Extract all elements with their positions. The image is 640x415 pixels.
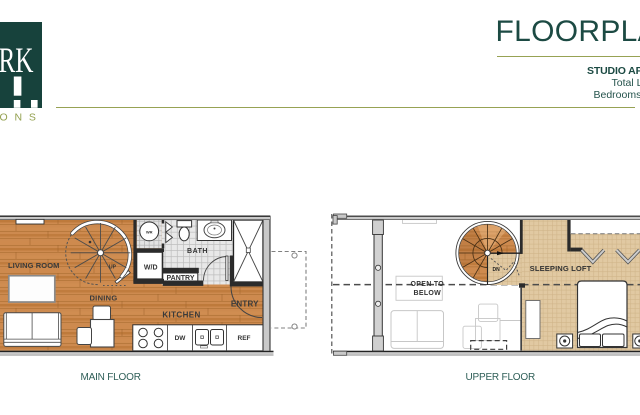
svg-text:ONS: ONS: [0, 112, 43, 124]
svg-text:DW: DW: [175, 335, 187, 342]
svg-text:BELOW: BELOW: [414, 290, 442, 297]
svg-text:UP: UP: [109, 265, 117, 271]
svg-text:KITCHEN: KITCHEN: [162, 311, 200, 320]
svg-text:SLEEPING LOFT: SLEEPING LOFT: [530, 264, 592, 273]
svg-text:DINING: DINING: [89, 294, 117, 303]
svg-text:REF: REF: [238, 335, 251, 342]
svg-text:RK: RK: [0, 40, 34, 80]
svg-text:BATH: BATH: [187, 248, 208, 255]
svg-text:OPEN TO: OPEN TO: [411, 281, 445, 288]
svg-text:W/D: W/D: [144, 265, 158, 272]
svg-text:DN: DN: [493, 267, 501, 273]
svg-text:LIVING ROOM: LIVING ROOM: [8, 261, 60, 270]
svg-text:WR: WR: [146, 229, 153, 234]
svg-text:ENTRY: ENTRY: [231, 300, 259, 309]
